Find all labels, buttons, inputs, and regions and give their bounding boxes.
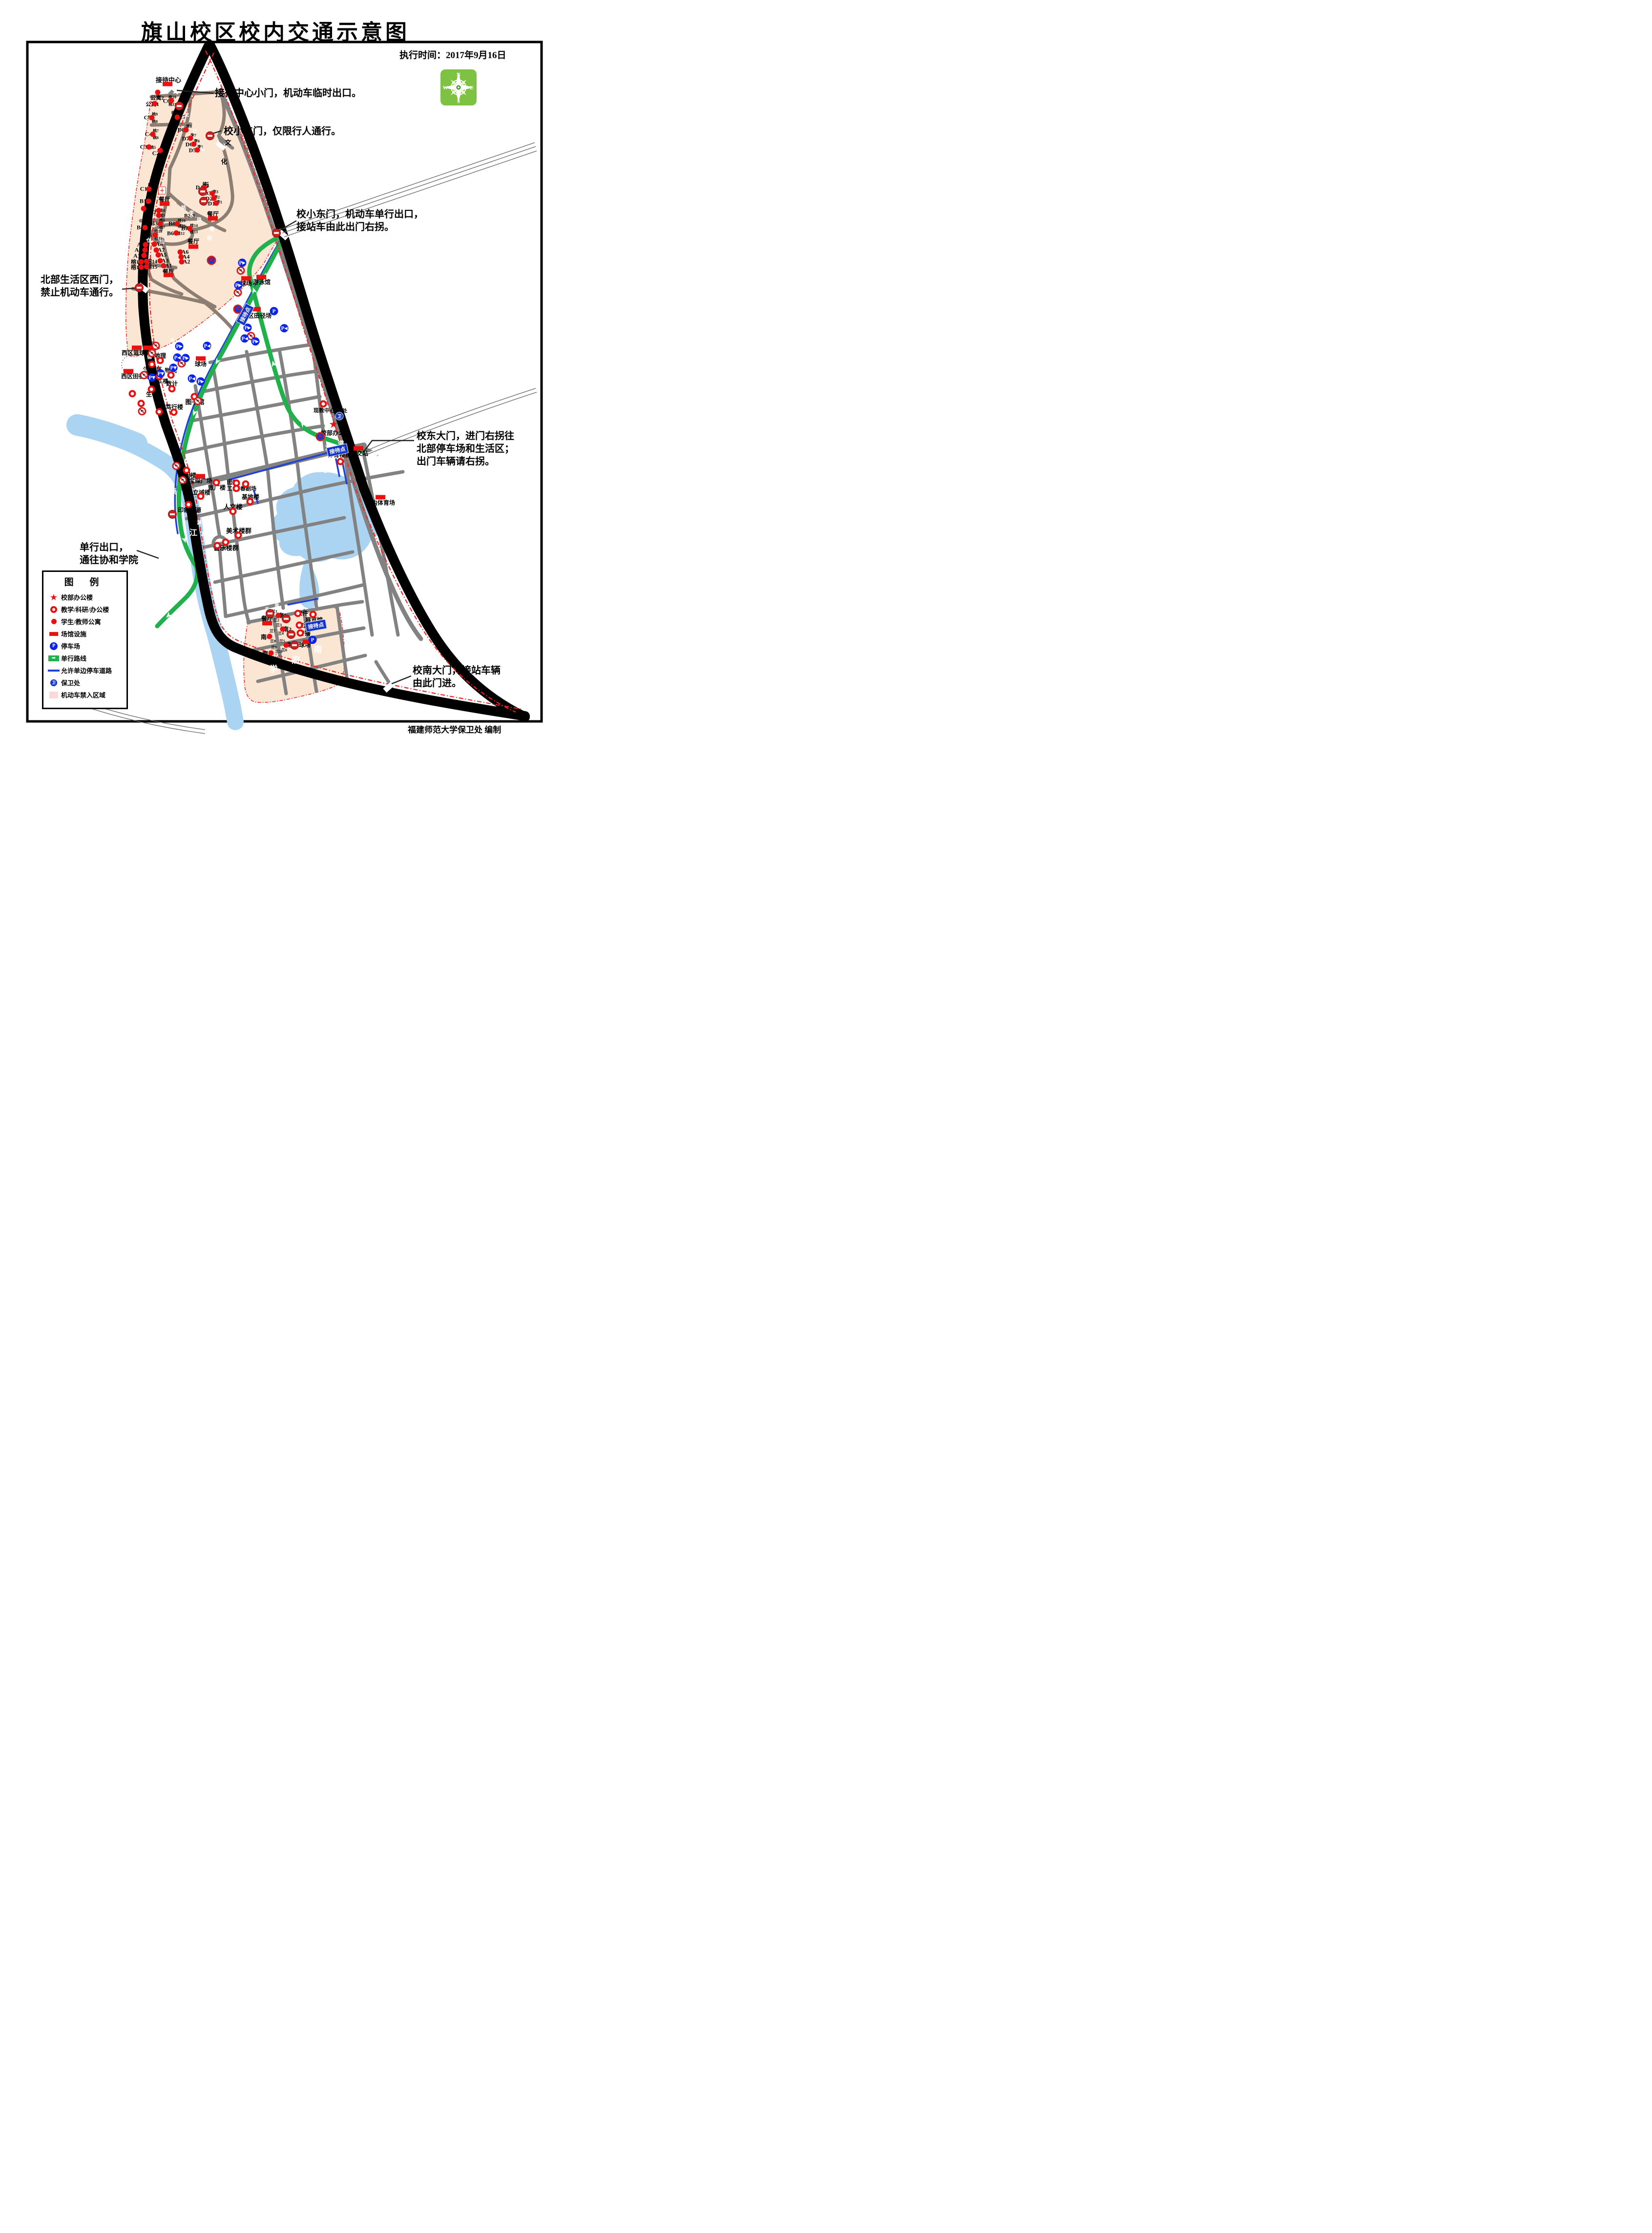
map-label: 江: [189, 526, 197, 538]
oneway-legend-icon: ➡: [46, 655, 61, 661]
office-building-icon: [296, 622, 303, 629]
parking-icon: P: [270, 307, 278, 316]
map-label: 山: [372, 560, 376, 567]
office-building-icon: [148, 361, 156, 368]
no-stopping-sign-icon: ✕: [207, 256, 216, 265]
office-building-icon: [213, 479, 220, 486]
office-building-icon: [185, 501, 192, 508]
legend-item-label: 场馆设施: [61, 629, 86, 638]
no-turn-sign-icon: ↶: [194, 397, 202, 405]
map-annotation-line: 校东大门，进门右拐往: [417, 430, 514, 442]
office-building-icon: [183, 467, 190, 474]
map-label: 南: [314, 643, 322, 655]
office-building-icon: [294, 610, 302, 617]
office-building-icon: [156, 408, 163, 416]
apartment-dot-icon: [143, 248, 148, 253]
blueline-legend-icon: [46, 670, 61, 672]
apartment-dot-icon: [175, 115, 180, 120]
apartment-dot-icon: [143, 225, 148, 231]
venue-icon: [262, 621, 272, 626]
no-entry-sign-icon: [198, 187, 207, 196]
badge-legend-icon: 卫: [46, 679, 61, 686]
map-label: 道: [396, 478, 404, 490]
apartment-dot-icon: [276, 613, 281, 618]
map-label: 现教中心: [314, 406, 335, 414]
footer-credit: 福建师范大学保卫处 编制: [408, 723, 501, 735]
no-turn-sign-icon: ↶: [148, 349, 156, 358]
venue-icon: [195, 474, 205, 479]
map-label: 桃: [181, 204, 186, 211]
map-label: 路: [197, 216, 202, 223]
p-icon: P: [50, 642, 58, 650]
map-label: 文: [225, 138, 231, 147]
apartment-dot-icon: [161, 263, 167, 269]
no-entry-sign-icon: [206, 131, 214, 140]
hq-star-icon: ★: [329, 419, 338, 430]
parking-icon: P▶: [157, 370, 165, 378]
venue-icon: [160, 202, 169, 206]
map-annotation-line: 北部生活区西门，: [41, 274, 119, 286]
campus-traffic-map: 旗山校区校内交通示意图 执行时间：2017年9月16日 福建师范大学保卫处 编制: [0, 0, 551, 744]
map-label: 仓: [170, 337, 175, 344]
apartment-dot-icon: [184, 127, 189, 133]
map-label: 江: [281, 298, 290, 310]
legend-item: 允许单边停车道路: [46, 664, 124, 676]
p-legend-icon: P: [46, 642, 61, 650]
apartment-dot-icon: [175, 221, 180, 227]
map-label: 路: [359, 632, 368, 644]
apartment-dot-icon: [152, 242, 157, 247]
apartment-dot-icon: [142, 253, 147, 258]
apartment-dot-icon: [195, 147, 200, 153]
map-label: 源: [168, 485, 176, 497]
apartment-dot-icon: [188, 136, 193, 141]
map-annotation-line: 出门车辆请右拐。: [417, 455, 514, 468]
map-label: 江: [192, 128, 197, 135]
no-entry-sign-icon: [266, 609, 274, 618]
office-building-icon: [297, 630, 304, 637]
legend-item-label: 教学/科研/办公楼: [61, 605, 109, 614]
legend-item: 场馆设施: [46, 628, 124, 640]
parking-icon: P▶: [173, 354, 182, 362]
map-label: 技: [130, 167, 138, 177]
parking-icon: P▶: [280, 324, 289, 333]
apartment-dot-icon: [158, 221, 163, 227]
map-label: 旗: [217, 465, 224, 475]
map-annotation: 校小东门，仅限行人通行。: [224, 125, 341, 138]
no-entry-sign-icon: [272, 229, 281, 237]
office-building-icon: [233, 485, 240, 492]
map-annotation-line: 单行出口，: [80, 541, 138, 554]
apartment-dot-icon: [155, 90, 161, 95]
map-label: 江: [272, 294, 277, 301]
map-label: 室内体育场: [366, 499, 395, 507]
badge-icon: 卫: [50, 679, 57, 686]
parking-icon: P▶: [197, 378, 205, 386]
apartment-dot-icon: [169, 98, 174, 104]
map-annotation: 北部生活区西门，禁止机动车通行。: [41, 274, 119, 299]
map-annotation-line: 由此门进。: [413, 677, 501, 690]
parking-icon: P▶: [203, 342, 211, 350]
venue-icon: [132, 346, 142, 350]
venue-icon: [354, 446, 363, 451]
map-label: 路: [289, 336, 293, 343]
map-label: 源: [197, 519, 202, 526]
no-turn-sign-icon: ↶: [234, 289, 242, 297]
map-label: 德: [209, 225, 214, 232]
map-label: 明: [207, 234, 212, 242]
rect-legend-icon: [46, 632, 61, 636]
map-label: 路: [202, 530, 207, 538]
parking-icon: P▶: [175, 342, 184, 351]
map-annotation-line: 校小东门，机动车单行出口，: [296, 208, 423, 221]
legend-item: 教学/科研/办公楼: [46, 603, 124, 615]
office-building-icon: [214, 542, 221, 549]
map-label: 龙: [184, 111, 189, 118]
apartment-dot-icon: [139, 265, 144, 270]
apartment-dot-icon: [158, 148, 163, 153]
map-label: B3: [151, 220, 158, 228]
legend-item-label: 保卫处: [61, 678, 80, 687]
map-label: 大: [368, 391, 376, 403]
map-annotation: 校东大门，进门右拐往北部停车场和生活区；出门车辆请右拐。: [417, 430, 514, 468]
parking-icon: P: [309, 636, 317, 644]
apartment-dot-icon: [146, 199, 151, 204]
apartment-dot-icon: [144, 259, 149, 264]
legend-item-label: 单行路线: [61, 653, 86, 663]
map-label: 府: [292, 653, 300, 666]
map-label: 仓: [366, 544, 371, 551]
map-annotation: 校小东门，机动车单行出口，接站车由此出门右拐。: [296, 208, 423, 233]
map-label: B6: [167, 230, 174, 237]
venue-icon: [208, 216, 218, 221]
venue-icon: [124, 369, 133, 374]
apartment-dot-icon: [174, 231, 179, 236]
office-building-icon: [197, 493, 205, 500]
apartment-dot-icon: [280, 627, 286, 632]
ring-icon: [50, 606, 57, 613]
map-label: 中: [280, 316, 285, 323]
office-building-icon: [310, 611, 317, 618]
map-annotation-line: 北部停车场和生活区；: [417, 442, 514, 455]
venue-icon: [256, 275, 266, 279]
map-annotation-line: 接待中心小门，机动车临时出口。: [215, 87, 361, 100]
apartment-dot-icon: [139, 259, 144, 265]
apartment-dot-icon: [284, 643, 289, 648]
legend-item-label: 允许单边停车道路: [61, 666, 112, 675]
no-entry-sign-icon: [282, 614, 291, 623]
no-entry-sign-icon: [199, 197, 208, 206]
office-building-icon: [230, 508, 237, 515]
apartment-dot-icon: [191, 142, 197, 147]
map-label: 仓: [323, 467, 328, 474]
legend-items: ★校部办公楼教学/科研/办公楼学生/教师公寓场馆设施P停车场➡单行路线允许单边停…: [46, 591, 124, 701]
no-turn-sign-icon: ↶: [138, 407, 146, 416]
office-building-icon: [247, 498, 254, 506]
office-building-icon: [222, 539, 230, 546]
venue-icon: [164, 273, 173, 277]
no-turn-sign-icon: ↶: [179, 476, 187, 485]
map-label: 南: [274, 602, 279, 609]
no-entry-sign-icon: [175, 102, 184, 110]
pinkzone-legend-icon: [46, 692, 61, 698]
apartment-dot-icon: [179, 259, 185, 265]
office-building-icon: [148, 386, 155, 393]
rect-icon: [49, 632, 58, 636]
office-building-icon: [167, 372, 175, 379]
map-label: 化: [221, 157, 227, 166]
map-label: 路: [299, 605, 304, 611]
legend-item: P停车场: [46, 640, 124, 652]
map-label: 兰11: [275, 649, 283, 654]
map-annotation: 接待中心小门，机动车临时出口。: [215, 87, 361, 100]
map-label: 北: [200, 145, 205, 152]
map-annotation-line: 校南大门，接站车辆: [413, 664, 501, 677]
apartment-dot-icon: [146, 187, 152, 192]
map-label: 球场: [195, 360, 207, 368]
legend-item: ➡单行路线: [46, 652, 124, 664]
apartment-dot-icon: [267, 634, 272, 639]
apartment-dot-icon: [150, 132, 156, 137]
map-annotation-line: 接站车由此出门右拐。: [296, 221, 423, 233]
map-label: B2: [149, 209, 156, 216]
office-building-icon: [337, 458, 344, 465]
page-title: 旗山校区校内交通示意图: [0, 15, 551, 46]
venue-icon: [196, 357, 206, 361]
parking-icon: P▶: [238, 259, 247, 267]
no-turn-sign-icon: ↶: [237, 267, 245, 275]
office-building-icon: [170, 409, 178, 416]
office-building-icon: [242, 481, 250, 488]
no-turn-sign-icon: ↶: [140, 371, 148, 379]
apartment-dot-icon: [156, 253, 161, 258]
parking-icon: P▶: [188, 375, 196, 383]
apartment-dot-icon: [153, 232, 158, 238]
star-legend-icon: ★: [46, 593, 61, 602]
parking-icon: P▶: [169, 364, 178, 372]
parking-icon: P▶: [234, 281, 243, 290]
parking-icon: P▶: [148, 374, 156, 382]
legend-item: ★校部办公楼: [46, 591, 124, 603]
apartment-dot-icon: [158, 258, 163, 264]
dot-legend-icon: [46, 619, 61, 624]
oneway-icon: ➡: [48, 655, 59, 661]
map-label: 兰8: [270, 639, 276, 644]
map-label: 科: [133, 137, 141, 147]
legend-item-label: 停车场: [61, 641, 80, 651]
security-office-icon: 卫: [335, 412, 344, 421]
apartment-dot-icon: [143, 242, 148, 248]
map-label: 法: [288, 605, 292, 611]
legend-title: 图 例: [46, 575, 124, 588]
map-label: 学: [270, 662, 278, 674]
map-annotation: 单行出口，通往协和学院: [80, 541, 138, 567]
no-entry-sign-icon: [290, 641, 299, 650]
office-building-icon: [320, 400, 327, 408]
venue-icon: [163, 82, 172, 86]
parking-icon: P▶: [241, 335, 249, 343]
office-building-icon: [168, 385, 176, 393]
map-annotation-line: 校小东门，仅限行人通行。: [224, 125, 341, 138]
clinic-icon: ＋: [158, 187, 166, 194]
map-label: 李: [189, 209, 194, 216]
office-building-icon: [157, 357, 164, 364]
map-label: 桃3: [162, 152, 167, 157]
apartment-dot-icon: [144, 264, 149, 270]
blueline-icon: [48, 670, 60, 672]
pinkzone-icon: [49, 692, 58, 698]
venue-icon: [188, 245, 198, 249]
apartment-dot-icon: [214, 201, 219, 206]
venue-icon: [376, 495, 385, 500]
no-entry-sign-icon: [168, 510, 177, 519]
map-label: 山: [160, 238, 165, 245]
legend: 图 例 ★校部办公楼教学/科研/办公楼学生/教师公寓场馆设施P停车场➡单行路线允…: [42, 570, 128, 709]
legend-item: 学生/教师公寓: [46, 615, 124, 628]
venue-icon: [241, 276, 251, 281]
parking-icon: P▶: [251, 337, 260, 346]
apartment-dot-icon: [188, 226, 193, 232]
map-label: 山: [270, 454, 276, 463]
map-label: 路: [122, 209, 129, 219]
office-building-icon: [138, 400, 145, 407]
map-label: 兰7: [270, 629, 275, 634]
ring-legend-icon: [46, 606, 61, 613]
map-annotation-line: 禁止机动车通行。: [41, 286, 119, 299]
dot-icon: [51, 619, 57, 624]
no-entry-sign-icon: [135, 283, 144, 292]
effective-date: 执行时间：2017年9月16日: [399, 48, 506, 61]
apartment-dot-icon: [141, 206, 146, 211]
apartment-dot-icon: [146, 145, 152, 150]
no-turn-sign-icon: ↶: [172, 462, 181, 470]
parking-icon: P▶: [182, 354, 190, 362]
office-building-icon: [129, 390, 136, 398]
office-building-icon: [235, 532, 242, 539]
legend-item-label: 机动车禁入区域: [61, 690, 105, 699]
map-annotation: 校南大门，接站车辆由此门进。: [413, 664, 501, 690]
legend-item-label: 学生/教师公寓: [61, 617, 101, 626]
legend-item: 卫保卫处: [46, 676, 124, 689]
map-label: 溪: [125, 411, 133, 423]
apartment-dot-icon: [152, 101, 158, 106]
legend-item-label: 校部办公楼: [61, 592, 93, 602]
no-stopping-sign-icon: ✕: [316, 432, 325, 442]
apartment-dot-icon: [156, 213, 162, 218]
no-entry-sign-icon: [287, 630, 295, 639]
star-icon: ★: [50, 593, 58, 602]
map-label: 兰10: [271, 655, 278, 661]
apartment-dot-icon: [269, 651, 274, 656]
legend-item: 机动车禁入区域: [46, 689, 124, 701]
apartment-dot-icon: [149, 115, 155, 121]
map-annotation-line: 通往协和学院: [80, 554, 138, 567]
